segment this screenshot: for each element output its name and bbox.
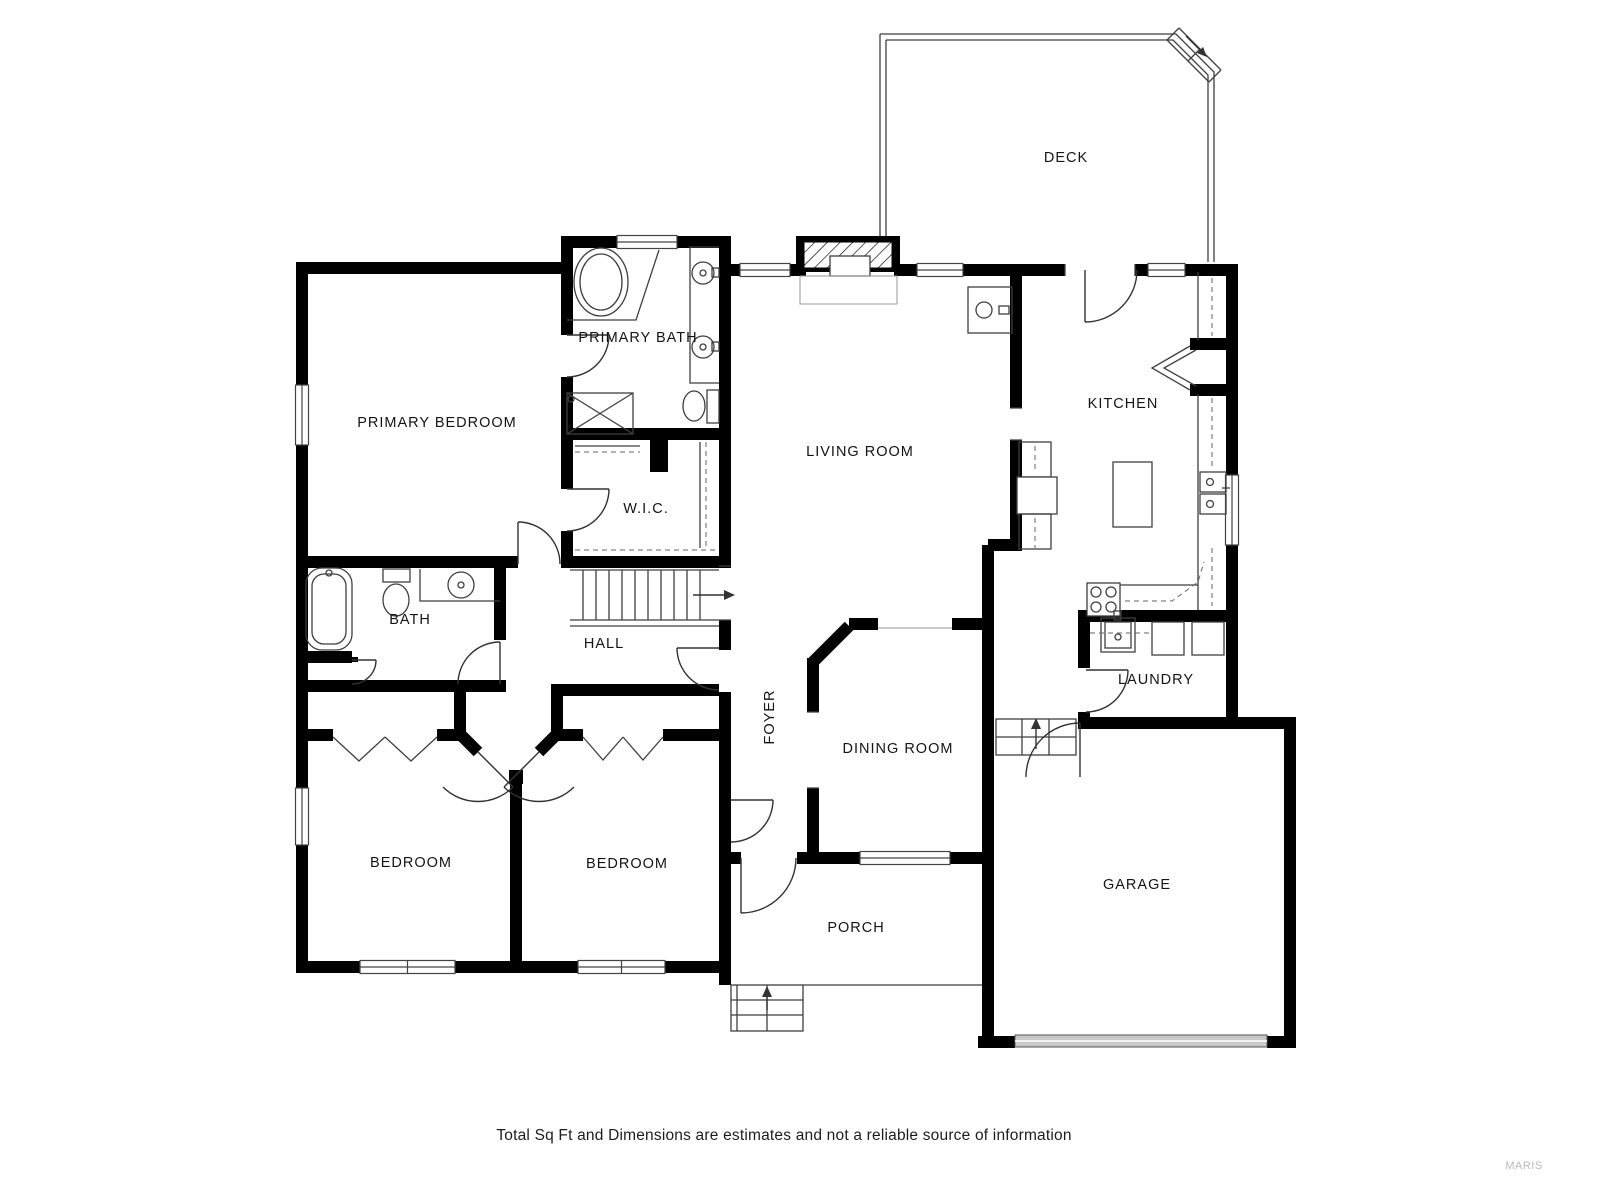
room-label-primary-bath: PRIMARY BATH [578,330,697,346]
vanity-sinks-icon [690,247,719,383]
window [617,236,677,249]
kitchen-island [1113,462,1152,527]
window [1148,264,1185,277]
opening-jambs [719,264,1135,788]
fireplace-icon [796,236,900,304]
built-in-niche [968,287,1012,333]
floorplan-drawing [0,0,1600,1200]
sink-icon [420,569,500,601]
room-label-dining-room: DINING ROOM [843,741,954,757]
room-label-wic: W.I.C. [623,501,668,517]
window [917,264,963,277]
door-swing [1026,723,1080,777]
window [740,264,790,277]
door-swing [567,489,609,531]
deck-stairs-icon [1167,28,1221,82]
room-label-hall: HALL [584,636,624,652]
garage-steps-icon [996,718,1076,755]
kitchen-counters [1120,272,1212,610]
wall-block [509,770,523,784]
wall-block [650,428,668,472]
maris-watermark: MARIS [1505,1160,1542,1172]
toilet-icon [383,569,410,616]
door-swing [443,752,513,801]
room-label-laundry: LAUNDRY [1118,672,1194,688]
room-label-deck: DECK [1044,150,1088,166]
room-label-kitchen: KITCHEN [1088,396,1159,412]
door-swing [518,522,560,564]
washer-icon [1152,622,1184,655]
window [578,961,665,974]
window [860,852,950,865]
corner-pantry-icon [1152,346,1196,390]
room-label-porch: PORCH [827,920,884,936]
window [296,788,309,845]
shower-icon [567,393,633,434]
refrigerator-icon [1017,442,1057,549]
room-label-primary-bedroom: PRIMARY BEDROOM [357,415,517,431]
closet-bifold-doors [333,737,663,761]
door-swing [1085,270,1137,322]
door-swing [741,858,796,913]
window [1226,475,1239,545]
wic-shelving [575,442,715,550]
staircase-icon [570,570,735,626]
room-label-bedroom-middle: BEDROOM [586,856,668,872]
window [296,385,309,445]
room-label-living-room: LIVING ROOM [806,444,914,460]
door-swing [458,642,500,684]
room-label-bedroom-left: BEDROOM [370,855,452,871]
dryer-icon [1192,622,1224,655]
bathtub-icon [567,248,659,320]
room-label-bath: BATH [389,612,431,628]
window [360,961,455,974]
toilet-icon [683,390,719,423]
floorplan-canvas: DECK PRIMARY BATH PRIMARY BEDROOM LIVING… [0,0,1600,1200]
porch-steps-icon [731,985,803,1031]
deck-outline [880,34,1214,262]
walls [296,236,1296,1048]
door-swing [731,800,773,842]
door-swing [677,648,719,690]
disclaimer-text: Total Sq Ft and Dimensions are estimates… [496,1127,1071,1145]
room-label-garage: GARAGE [1103,877,1171,893]
bathtub-icon [306,568,352,650]
garage-door [1015,1035,1267,1047]
room-label-foyer: FOYER [762,690,778,745]
hearth [800,276,897,304]
